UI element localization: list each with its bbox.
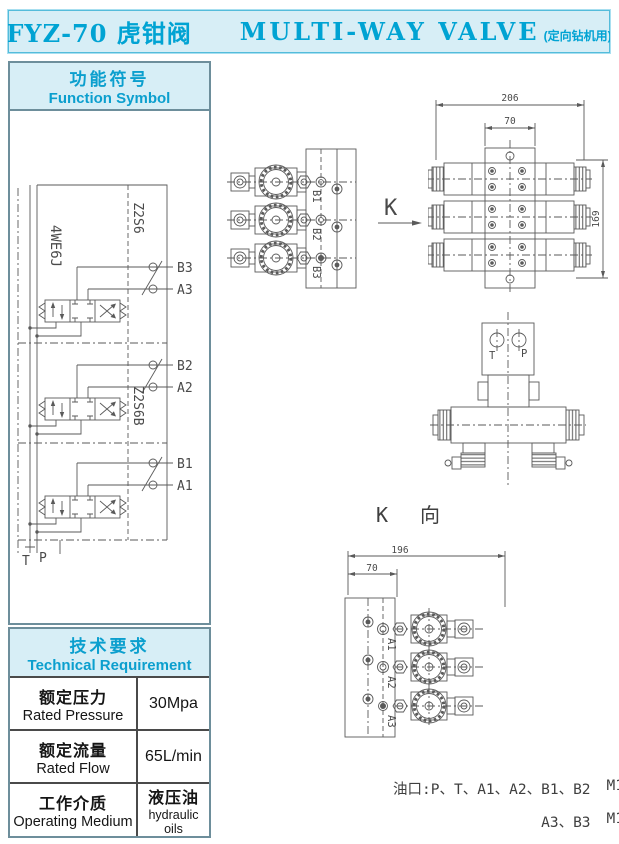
leg — [532, 443, 554, 453]
note-line2-thread: M12*1.5 — [607, 811, 619, 832]
port-label-a3: A3 — [177, 283, 193, 298]
spec-label: 工作介质 Operating Medium — [10, 784, 138, 836]
spec-label-en: Operating Medium — [10, 814, 136, 830]
side-port-label-b1: B1 — [310, 190, 322, 203]
port-label-a2: A2 — [177, 381, 193, 396]
ports-note: 油口:P、T、A1、A2、B1、B2 M16*1.5 A3、B3 M12*1.5 — [393, 778, 619, 832]
function-heading-en: Function Symbol — [10, 90, 209, 107]
leg — [463, 443, 485, 453]
spec-label-zh: 额定流量 — [10, 737, 136, 761]
pump-label: P — [39, 551, 47, 566]
spec-row-pressure: 额定压力 Rated Pressure 30Mpa — [10, 678, 209, 729]
side-port-label-b3: B3 — [310, 266, 322, 279]
side-port-label-b2: B2 — [310, 228, 322, 241]
title-bar: FYZ-70 虎钳阀 MULTI-WAY VALVE (定向钻机用) — [8, 10, 610, 53]
tech-heading-en: Technical Requirement — [10, 657, 209, 674]
spec-row-medium: 工作介质 Operating Medium 液压油 hydraulic oils — [10, 782, 209, 836]
note-line1-ports: 油口:P、T、A1、A2、B1、B2 — [393, 778, 591, 799]
arrow-head — [412, 220, 422, 225]
port-label-b3: B3 — [177, 261, 193, 276]
spec-label-en: Rated Pressure — [10, 708, 136, 724]
k-port-label-a1: A1 — [385, 638, 397, 651]
spec-row-flow: 额定流量 Rated Flow 65L/min — [10, 729, 209, 782]
valve-section — [28, 359, 173, 436]
port-label-b2: B2 — [177, 359, 193, 374]
dim-70: 70 — [504, 116, 516, 127]
solenoid-valve-unit — [393, 608, 483, 650]
tank-label: T — [22, 554, 30, 569]
port-p-label: P — [521, 348, 527, 360]
k-arrow-label: K — [384, 196, 398, 221]
note-line2-ports: A3、B3 — [393, 811, 591, 832]
spec-value-main: 65L/min — [138, 748, 209, 766]
centerlines — [430, 312, 586, 485]
valve-section — [28, 457, 173, 534]
front-view-drawing: 206 70 169 — [428, 88, 618, 293]
neck — [488, 375, 529, 407]
top-view-drawing: T P — [428, 300, 618, 490]
view-direction-arrow: K — [368, 190, 428, 230]
valve-section — [28, 261, 173, 338]
spec-label: 额定流量 Rated Flow — [10, 731, 138, 782]
extension-lines — [348, 551, 505, 607]
note-line1-thread: M16*1.5 — [607, 778, 619, 799]
spec-label-zh: 额定压力 — [10, 684, 136, 708]
solenoid-valve-unit — [393, 646, 483, 688]
spec-value-sub: hydraulic oils — [138, 808, 209, 836]
spec-value: 液压油 hydraulic oils — [138, 784, 209, 836]
k-view-title: K 向 — [348, 499, 478, 528]
tech-heading-zh: 技术要求 — [10, 632, 209, 657]
supply-rails — [30, 185, 37, 553]
title-name: MULTI-WAY VALVE — [240, 17, 540, 46]
datasheet-page: FYZ-70 虎钳阀 MULTI-WAY VALVE (定向钻机用) 功能符号 … — [0, 0, 619, 844]
k-port-label-a3: A3 — [385, 715, 397, 728]
dim-70-k: 70 — [366, 563, 378, 574]
spec-table: 额定压力 Rated Pressure 30Mpa 额定流量 Rated Flo… — [10, 678, 209, 836]
dim-196: 196 — [391, 545, 408, 556]
technical-requirement-panel: 技术要求 Technical Requirement 额定压力 Rated Pr… — [8, 627, 211, 838]
valve-model-label: 4WE6J — [47, 225, 63, 267]
k-port-label-a2: A2 — [385, 676, 397, 689]
k-view-drawing: 196 70 A1 A2 A3 — [340, 545, 515, 755]
function-heading-zh: 功能符号 — [10, 65, 209, 90]
port-label-b1: B1 — [177, 457, 193, 472]
dim-206: 206 — [501, 93, 518, 104]
title-note: (定向钻机用) — [544, 27, 612, 44]
spec-label: 额定压力 Rated Pressure — [10, 678, 138, 729]
technical-panel-header: 技术要求 Technical Requirement — [10, 629, 209, 678]
dim-169: 169 — [591, 210, 602, 227]
spec-value: 65L/min — [138, 731, 209, 782]
function-panel-header: 功能符号 Function Symbol — [10, 63, 209, 111]
title-model: FYZ-70 虎钳阀 — [6, 14, 191, 49]
spec-label-zh: 工作介质 — [10, 790, 136, 814]
spec-value-main: 液压油 — [138, 784, 209, 808]
check-module-label-top: Z2S6 — [130, 202, 145, 233]
solenoid-valve-unit — [393, 685, 483, 727]
hydraulic-circuit-diagram: 4WE6J Z2S6 Z2S6B B3 A3 B2 A2 B1 A1 T P — [9, 110, 210, 625]
check-module-label-mid: Z2S6B — [130, 386, 145, 425]
port-t-label: T — [489, 350, 496, 362]
spec-label-en: Rated Flow — [10, 761, 136, 777]
spec-value: 30Mpa — [138, 678, 209, 729]
spec-value-main: 30Mpa — [138, 695, 209, 713]
port-plug — [318, 255, 324, 261]
port-label-a1: A1 — [177, 479, 193, 494]
